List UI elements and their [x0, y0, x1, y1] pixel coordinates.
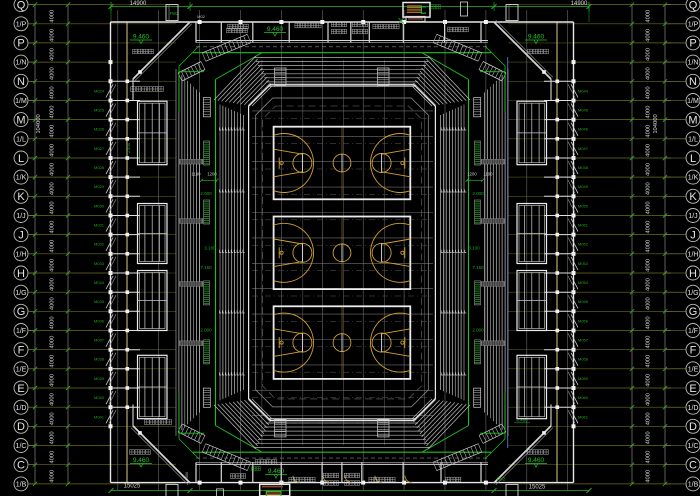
svg-text:M053: M053	[578, 261, 589, 266]
svg-text:1/K: 1/K	[688, 175, 699, 182]
svg-text:14900: 14900	[130, 1, 147, 7]
svg-text:M030: M030	[94, 203, 105, 208]
svg-text:1/F: 1/F	[16, 328, 26, 335]
svg-text:E: E	[17, 383, 24, 395]
svg-text:M036: M036	[94, 318, 105, 323]
svg-text:F: F	[690, 345, 697, 357]
svg-text:L: L	[18, 153, 24, 165]
svg-text:9.460: 9.460	[528, 457, 545, 464]
svg-text:4000: 4000	[50, 48, 56, 61]
svg-text:1/B: 1/B	[688, 482, 699, 489]
svg-text:4000: 4000	[646, 355, 652, 368]
svg-text:4000: 4000	[50, 10, 56, 23]
svg-text:M056: M056	[578, 318, 589, 323]
svg-text:3.100: 3.100	[204, 246, 216, 251]
svg-text:1/E: 1/E	[16, 366, 27, 373]
svg-text:4000: 4000	[50, 336, 56, 349]
svg-text:1/L: 1/L	[16, 136, 26, 143]
svg-text:M027: M027	[94, 146, 105, 151]
svg-text:K: K	[17, 191, 25, 203]
svg-text:M051: M051	[578, 223, 589, 228]
svg-text:4000: 4000	[646, 201, 652, 214]
svg-text:1200: 1200	[207, 172, 217, 177]
svg-text:M02: M02	[197, 14, 206, 19]
svg-text:1/D: 1/D	[16, 405, 27, 412]
svg-text:E: E	[689, 383, 696, 395]
svg-text:1/H: 1/H	[688, 251, 699, 258]
svg-text:1190: 1190	[483, 172, 493, 177]
svg-text:C: C	[17, 460, 25, 472]
svg-text:D: D	[17, 421, 25, 433]
svg-text:2.400: 2.400	[126, 142, 131, 153]
svg-text:M025: M025	[94, 108, 105, 113]
svg-text:1/N: 1/N	[16, 60, 27, 67]
svg-text:9.460: 9.460	[267, 26, 284, 33]
svg-text:4000: 4000	[646, 67, 652, 80]
svg-text:M024: M024	[94, 88, 105, 93]
svg-text:4000: 4000	[646, 451, 652, 464]
svg-text:1/P: 1/P	[688, 21, 699, 28]
svg-text:M047: M047	[578, 146, 589, 151]
svg-text:4000: 4000	[50, 86, 56, 99]
svg-text:D: D	[689, 421, 697, 433]
svg-text:M: M	[688, 114, 697, 126]
svg-text:M041: M041	[94, 414, 105, 419]
svg-text:1/E: 1/E	[688, 366, 699, 373]
svg-text:7.150: 7.150	[472, 265, 484, 270]
svg-text:4000: 4000	[646, 336, 652, 349]
svg-text:4000: 4000	[646, 374, 652, 387]
svg-text:4000: 4000	[646, 48, 652, 61]
svg-text:4000: 4000	[50, 67, 56, 80]
svg-text:104000: 104000	[653, 114, 659, 133]
svg-text:1/G: 1/G	[687, 290, 698, 297]
svg-text:C: C	[689, 460, 697, 472]
svg-text:4000: 4000	[50, 163, 56, 176]
svg-text:Q: Q	[17, 0, 26, 11]
svg-text:M060: M060	[578, 395, 589, 400]
svg-text:4000: 4000	[646, 125, 652, 138]
svg-text:15025: 15025	[529, 485, 546, 491]
svg-text:9.460: 9.460	[133, 34, 150, 41]
svg-text:15025: 15025	[124, 484, 141, 490]
svg-text:1/H: 1/H	[16, 251, 27, 258]
svg-text:1/J: 1/J	[688, 213, 697, 220]
svg-text:M026: M026	[94, 127, 105, 132]
svg-text:14900: 14900	[571, 1, 588, 7]
svg-text:9.460: 9.460	[133, 457, 150, 464]
svg-text:4000: 4000	[50, 297, 56, 310]
svg-text:M: M	[16, 114, 25, 126]
svg-text:M035: M035	[94, 299, 105, 304]
svg-text:M058: M058	[578, 357, 589, 362]
svg-text:F: F	[18, 345, 25, 357]
svg-text:M057: M057	[578, 338, 589, 343]
svg-text:4000: 4000	[646, 106, 652, 119]
svg-text:M055: M055	[578, 299, 589, 304]
svg-text:4000: 4000	[646, 221, 652, 234]
svg-text:M037: M037	[94, 338, 105, 343]
svg-text:M038: M038	[94, 357, 105, 362]
svg-text:4000: 4000	[50, 451, 56, 464]
svg-text:4000: 4000	[646, 240, 652, 253]
svg-text:4000: 4000	[646, 297, 652, 310]
svg-text:4000: 4000	[646, 393, 652, 406]
svg-text:M034: M034	[94, 280, 105, 285]
svg-text:4000: 4000	[646, 316, 652, 329]
svg-text:2.000: 2.000	[472, 191, 484, 196]
svg-text:1/J: 1/J	[16, 213, 25, 220]
svg-text:4000: 4000	[50, 278, 56, 291]
svg-text:4000: 4000	[50, 431, 56, 444]
svg-text:4000: 4000	[50, 316, 56, 329]
svg-text:M033: M033	[94, 261, 105, 266]
svg-text:9.460: 9.460	[528, 34, 545, 41]
svg-text:4000: 4000	[646, 182, 652, 195]
svg-text:4000: 4000	[50, 412, 56, 425]
svg-text:4000: 4000	[50, 240, 56, 253]
svg-text:H: H	[17, 268, 25, 280]
svg-text:4000: 4000	[50, 29, 56, 42]
svg-text:4000: 4000	[646, 278, 652, 291]
svg-text:1/G: 1/G	[15, 290, 26, 297]
svg-text:M061: M061	[578, 414, 589, 419]
svg-text:M032: M032	[94, 242, 105, 247]
svg-text:P: P	[17, 38, 24, 50]
svg-text:M059: M059	[578, 376, 589, 381]
svg-text:1/F: 1/F	[688, 328, 698, 335]
svg-text:M049: M049	[578, 184, 589, 189]
svg-text:N: N	[17, 76, 25, 88]
svg-text:4000: 4000	[50, 182, 56, 195]
svg-text:4000: 4000	[646, 431, 652, 444]
svg-text:4000: 4000	[646, 259, 652, 272]
svg-text:4000: 4000	[646, 470, 652, 483]
svg-text:G: G	[689, 306, 698, 318]
svg-text:2.000: 2.000	[472, 328, 484, 333]
svg-text:1/P: 1/P	[16, 21, 27, 28]
svg-text:4000: 4000	[646, 10, 652, 23]
svg-text:2.000: 2.000	[200, 191, 212, 196]
svg-text:4000: 4000	[50, 259, 56, 272]
svg-text:1/L: 1/L	[688, 136, 698, 143]
svg-text:1/C: 1/C	[16, 443, 27, 450]
svg-text:4000: 4000	[50, 144, 56, 157]
svg-text:Q: Q	[689, 0, 698, 11]
svg-text:H: H	[689, 268, 697, 280]
svg-text:1/K: 1/K	[16, 175, 27, 182]
svg-text:4000: 4000	[50, 355, 56, 368]
svg-text:M054: M054	[578, 280, 589, 285]
svg-text:4000: 4000	[50, 125, 56, 138]
svg-text:L: L	[690, 153, 696, 165]
svg-text:4000: 4000	[646, 29, 652, 42]
svg-text:4000: 4000	[50, 374, 56, 387]
svg-text:1200: 1200	[467, 172, 477, 177]
svg-text:4000: 4000	[50, 106, 56, 119]
svg-text:1/C: 1/C	[688, 443, 699, 450]
svg-text:7.150: 7.150	[200, 265, 212, 270]
svg-text:G: G	[17, 306, 26, 318]
svg-text:M039: M039	[94, 376, 105, 381]
svg-text:4000: 4000	[50, 470, 56, 483]
svg-text:M048: M048	[578, 165, 589, 170]
svg-text:FM2: FM2	[497, 477, 506, 482]
svg-text:M031: M031	[94, 223, 105, 228]
svg-text:M052: M052	[578, 242, 589, 247]
svg-text:K: K	[689, 191, 697, 203]
svg-text:M029: M029	[94, 184, 105, 189]
svg-text:P: P	[689, 38, 696, 50]
svg-text:1/B: 1/B	[16, 482, 27, 489]
svg-text:104000: 104000	[36, 114, 42, 133]
svg-text:4000: 4000	[646, 86, 652, 99]
svg-text:N: N	[689, 76, 697, 88]
svg-text:M044: M044	[578, 88, 589, 93]
svg-text:J: J	[18, 229, 24, 241]
svg-text:2400: 2400	[185, 472, 189, 480]
svg-text:1/N: 1/N	[688, 60, 699, 67]
svg-text:M040: M040	[94, 395, 105, 400]
svg-text:M028: M028	[94, 165, 105, 170]
svg-text:J: J	[690, 229, 696, 241]
svg-text:M050: M050	[578, 203, 589, 208]
svg-text:3.100: 3.100	[468, 246, 480, 251]
svg-text:4000: 4000	[50, 393, 56, 406]
svg-text:M045: M045	[578, 108, 589, 113]
svg-text:2.000: 2.000	[200, 328, 212, 333]
svg-text:4000: 4000	[646, 163, 652, 176]
svg-text:M046: M046	[578, 127, 589, 132]
svg-text:1/M: 1/M	[15, 98, 27, 105]
svg-text:4000: 4000	[50, 221, 56, 234]
svg-text:4000: 4000	[646, 144, 652, 157]
svg-text:1/M: 1/M	[687, 98, 699, 105]
svg-text:4000: 4000	[50, 201, 56, 214]
svg-text:9.460: 9.460	[268, 468, 285, 475]
svg-text:4000: 4000	[646, 412, 652, 425]
svg-text:1/D: 1/D	[688, 405, 699, 412]
svg-text:1190: 1190	[191, 172, 201, 177]
